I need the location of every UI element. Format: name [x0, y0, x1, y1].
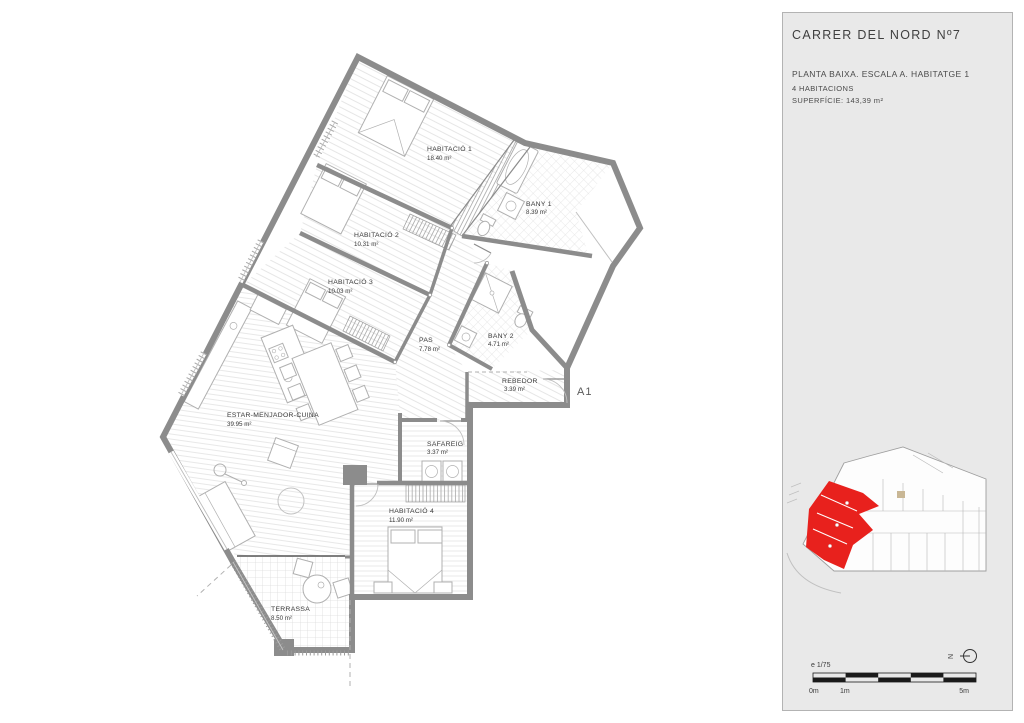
- room-label-hab1: HABITACIÓ 1: [427, 144, 472, 153]
- room-area-hab4: 11.90 m²: [389, 517, 413, 524]
- sidebar-graphics: N e 1/75 0m 1m 5m: [783, 13, 1012, 710]
- room-label-rebedor: REBEDOR: [502, 378, 538, 385]
- drawing-sheet: HABITACIÓ 1 18.40 m² BANY 1 8.39 m² HABI…: [0, 0, 1024, 723]
- site-plan-stair-core: [897, 491, 905, 498]
- room-label-hab4: HABITACIÓ 4: [389, 506, 434, 515]
- room-label-hab3: HABITACIÓ 3: [328, 277, 373, 286]
- scale-tick-0m: 0m: [809, 688, 819, 695]
- info-panel: CARRER DEL NORD Nº7 PLANTA BAIXA. ESCALA…: [782, 12, 1013, 711]
- room-area-hab3: 10.03 m²: [328, 288, 352, 295]
- room-label-terrassa: TERRASSA: [271, 606, 310, 613]
- room-label-pas: PAS: [419, 337, 433, 344]
- scale-bar: e 1/75 0m 1m 5m: [809, 662, 976, 695]
- room-label-hab2: HABITACIÓ 2: [354, 230, 399, 239]
- site-plan: [787, 447, 986, 593]
- terrace-chair-1: [293, 558, 313, 578]
- north-label: N: [948, 654, 955, 659]
- room-area-pas: 7.78 m²: [419, 346, 440, 353]
- room-label-bany2: BANY 2: [488, 333, 514, 340]
- crosswalk-ticks: [787, 483, 801, 503]
- room-label-safareig: SAFAREIG: [427, 441, 463, 448]
- floor-plan: HABITACIÓ 1 18.40 m² BANY 1 8.39 m² HABI…: [0, 0, 780, 723]
- room-area-hab1: 18.40 m²: [427, 155, 451, 162]
- room-area-bany2: 4.71 m²: [488, 341, 509, 348]
- room-label-bany1: BANY 1: [526, 201, 552, 208]
- room-area-rebedor: 3.39 m²: [504, 386, 525, 393]
- room-area-terrassa: 8.50 m²: [271, 615, 292, 622]
- scale-tick-1m: 1m: [840, 688, 850, 695]
- scale-tick-5m: 5m: [959, 688, 969, 695]
- scale-label: e 1/75: [811, 662, 831, 669]
- hab4-corner-block: [343, 465, 367, 485]
- terrace-table: [303, 575, 331, 603]
- room-area-estar: 39.95 m²: [227, 421, 251, 428]
- scale-bar-segments: [813, 673, 976, 682]
- room-area-safareig: 3.37 m²: [427, 449, 448, 456]
- entrance-label: A1: [577, 386, 592, 398]
- room-label-estar: ESTAR-MENJADOR-CUINA: [227, 412, 319, 419]
- room-area-bany1: 8.39 m²: [526, 209, 547, 216]
- north-arrow: N: [948, 650, 977, 663]
- room-area-hab2: 10.31 m²: [354, 241, 378, 248]
